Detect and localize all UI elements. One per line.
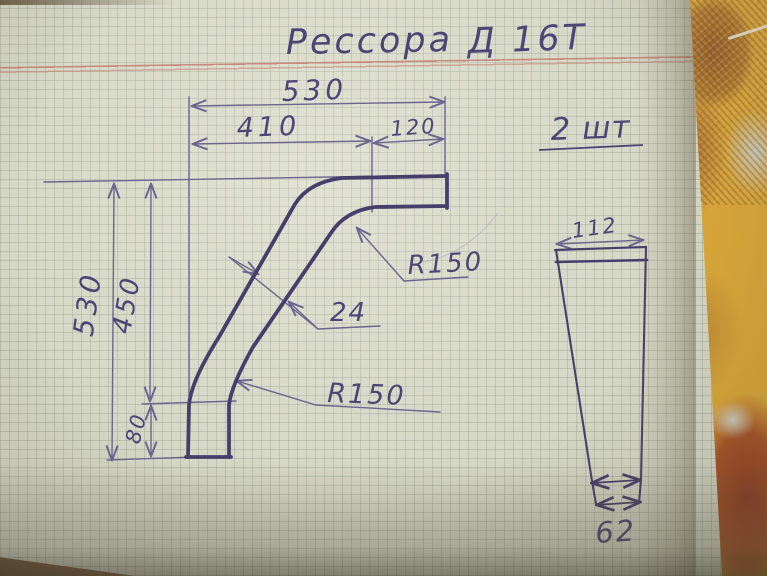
label-530-top: 530: [281, 73, 348, 108]
label-62: 62: [594, 513, 637, 550]
label-80: 80: [121, 410, 152, 446]
dim-line-450: [150, 184, 151, 401]
quantity-note: 2 шт: [539, 109, 643, 150]
paper-edge-shadow: [636, 0, 696, 576]
side-dim-line-112: [557, 240, 643, 244]
label-radius-upper: R150: [407, 247, 484, 281]
label-112: 112: [570, 213, 619, 243]
side-left-edge: [556, 250, 596, 504]
extension-y458: [107, 457, 196, 460]
spring-inner-edge: [229, 206, 447, 457]
side-top-edge: [555, 247, 646, 250]
label-radius-lower: R150: [327, 378, 406, 412]
title-part1: Рессора: [285, 20, 453, 63]
label-410: 410: [236, 111, 301, 144]
drawing-title: Рессора Д 16Т: [285, 18, 587, 63]
title-part2: Д 16Т: [465, 18, 588, 62]
side-view: [555, 240, 647, 505]
leader-thickness-arrow-outer: [229, 257, 258, 274]
side-bottom-edge: [597, 502, 640, 505]
label-thickness: 24: [330, 298, 367, 328]
photo-of-hand-drawn-sketch: Рессора Д 16Т 2 шт: [0, 0, 767, 576]
label-120: 120: [390, 114, 438, 141]
spring-outer-edge: [188, 176, 447, 457]
side-top-step: [556, 260, 647, 262]
label-530-left: 530: [67, 269, 109, 338]
side-bottom-step: [592, 480, 640, 483]
leader-thickness-arrow-inner: [289, 302, 318, 329]
spring-profile: [186, 174, 447, 457]
quantity-label: 2 шт: [550, 109, 631, 148]
table-edge-top: [0, 0, 175, 5]
